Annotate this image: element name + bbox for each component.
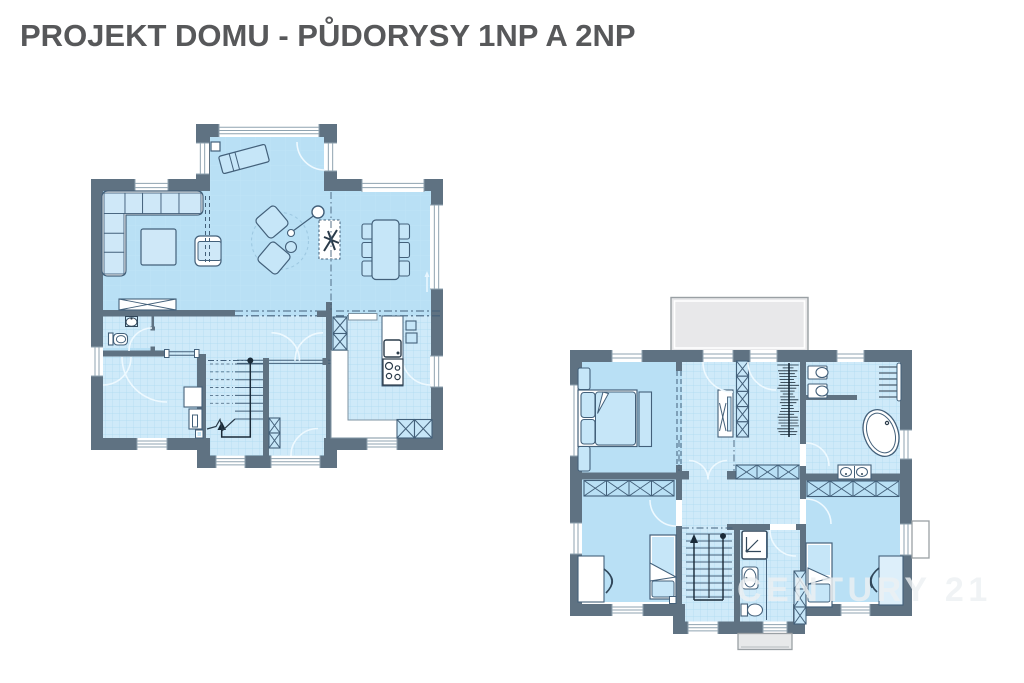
- svg-text:CENTURY 21: CENTURY 21: [737, 571, 992, 609]
- svg-text:PROJEKT DOMU - PŮDORYSY 1NP A: PROJEKT DOMU - PŮDORYSY 1NP A 2NP: [20, 15, 636, 53]
